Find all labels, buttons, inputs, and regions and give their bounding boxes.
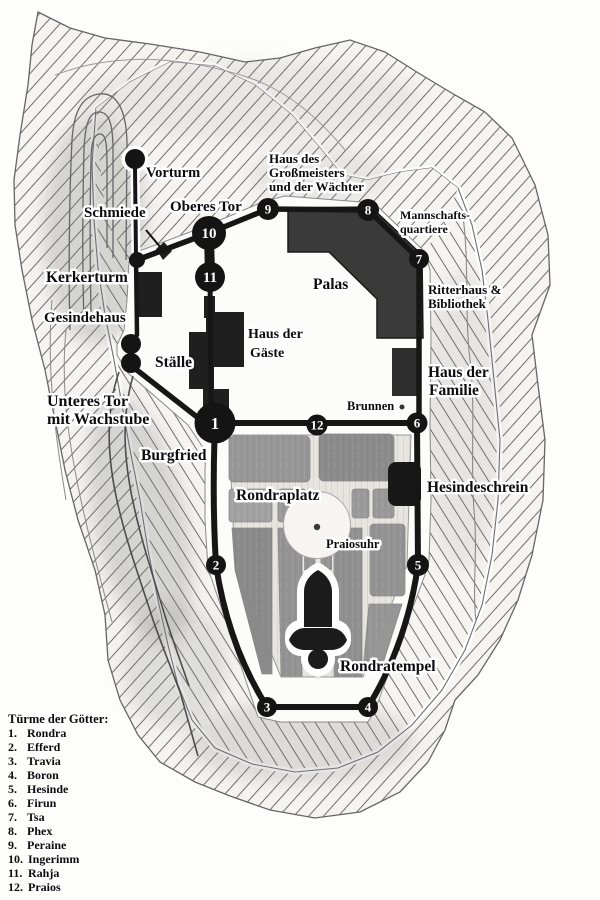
svg-text:Praios: Praios: [28, 880, 61, 894]
svg-text:4: 4: [365, 700, 372, 715]
svg-text:Efferd: Efferd: [27, 740, 61, 754]
svg-text:Rondra: Rondra: [27, 726, 66, 740]
svg-text:Tsa: Tsa: [27, 810, 45, 824]
svg-text:Rondratempel: Rondratempel: [340, 658, 436, 675]
svg-text:Haus der: Haus der: [248, 327, 303, 342]
svg-text:Burgfried: Burgfried: [141, 447, 207, 464]
svg-text:1: 1: [211, 414, 219, 433]
svg-text:Ingerimm: Ingerimm: [28, 852, 79, 866]
svg-text:Travia: Travia: [27, 754, 61, 768]
svg-text:12: 12: [311, 418, 324, 433]
svg-text:Vorturm: Vorturm: [146, 165, 200, 181]
svg-text:Haus des: Haus des: [269, 151, 319, 166]
svg-text:7: 7: [416, 252, 423, 267]
svg-text:Haus der: Haus der: [428, 364, 489, 381]
svg-text:7.: 7.: [8, 810, 17, 824]
svg-text:Ställe: Ställe: [155, 354, 192, 371]
svg-text:Praiosuhr: Praiosuhr: [326, 537, 380, 551]
svg-text:12.: 12.: [8, 880, 23, 894]
svg-text:Ritterhaus &: Ritterhaus &: [428, 282, 501, 297]
svg-text:6.: 6.: [8, 796, 17, 810]
svg-text:Brunnen: Brunnen: [347, 399, 394, 413]
svg-text:Hesinde: Hesinde: [27, 782, 69, 796]
svg-text:2: 2: [213, 558, 220, 573]
svg-text:2.: 2.: [8, 740, 17, 754]
svg-text:Peraine: Peraine: [27, 838, 67, 852]
svg-text:3: 3: [264, 700, 271, 715]
svg-text:Firun: Firun: [27, 796, 57, 810]
svg-text:Rondraplatz: Rondraplatz: [236, 487, 320, 504]
svg-text:Familie: Familie: [429, 382, 479, 399]
svg-text:11.: 11.: [8, 866, 22, 880]
svg-text:Schmiede: Schmiede: [84, 205, 146, 221]
svg-text:Phex: Phex: [27, 824, 52, 838]
svg-text:Türme der Götter:: Türme der Götter:: [8, 712, 108, 726]
svg-text:Boron: Boron: [27, 768, 59, 782]
svg-text:Bibliothek: Bibliothek: [428, 296, 487, 311]
svg-text:10.: 10.: [8, 852, 23, 866]
svg-text:5: 5: [415, 558, 422, 573]
svg-text:Gäste: Gäste: [250, 346, 284, 361]
svg-text:quartiere: quartiere: [400, 222, 448, 236]
svg-text:Palas: Palas: [313, 276, 348, 293]
svg-text:6: 6: [414, 416, 421, 431]
svg-text:Kerkerturm: Kerkerturm: [46, 269, 128, 286]
svg-text:Rahja: Rahja: [28, 866, 59, 880]
svg-text:11: 11: [203, 270, 217, 286]
svg-text:mit Wachstube: mit Wachstube: [47, 411, 149, 428]
svg-text:4.: 4.: [8, 768, 17, 782]
svg-text:Oberes Tor: Oberes Tor: [170, 199, 242, 215]
svg-text:8.: 8.: [8, 824, 17, 838]
svg-text:Großmeisters: Großmeisters: [269, 165, 345, 180]
svg-text:und der Wächter: und der Wächter: [269, 179, 364, 194]
svg-text:Unteres Tor: Unteres Tor: [47, 393, 128, 410]
svg-text:Hesindeschrein: Hesindeschrein: [427, 479, 529, 496]
svg-text:9.: 9.: [8, 838, 17, 852]
svg-text:9: 9: [265, 202, 272, 217]
svg-text:1.: 1.: [8, 726, 17, 740]
svg-text:8: 8: [365, 203, 372, 218]
svg-text:3.: 3.: [8, 754, 17, 768]
svg-text:Gesindehaus: Gesindehaus: [44, 310, 126, 326]
svg-text:10: 10: [202, 226, 217, 242]
svg-text:5.: 5.: [8, 782, 17, 796]
svg-text:Mannschafts-: Mannschafts-: [400, 208, 470, 222]
